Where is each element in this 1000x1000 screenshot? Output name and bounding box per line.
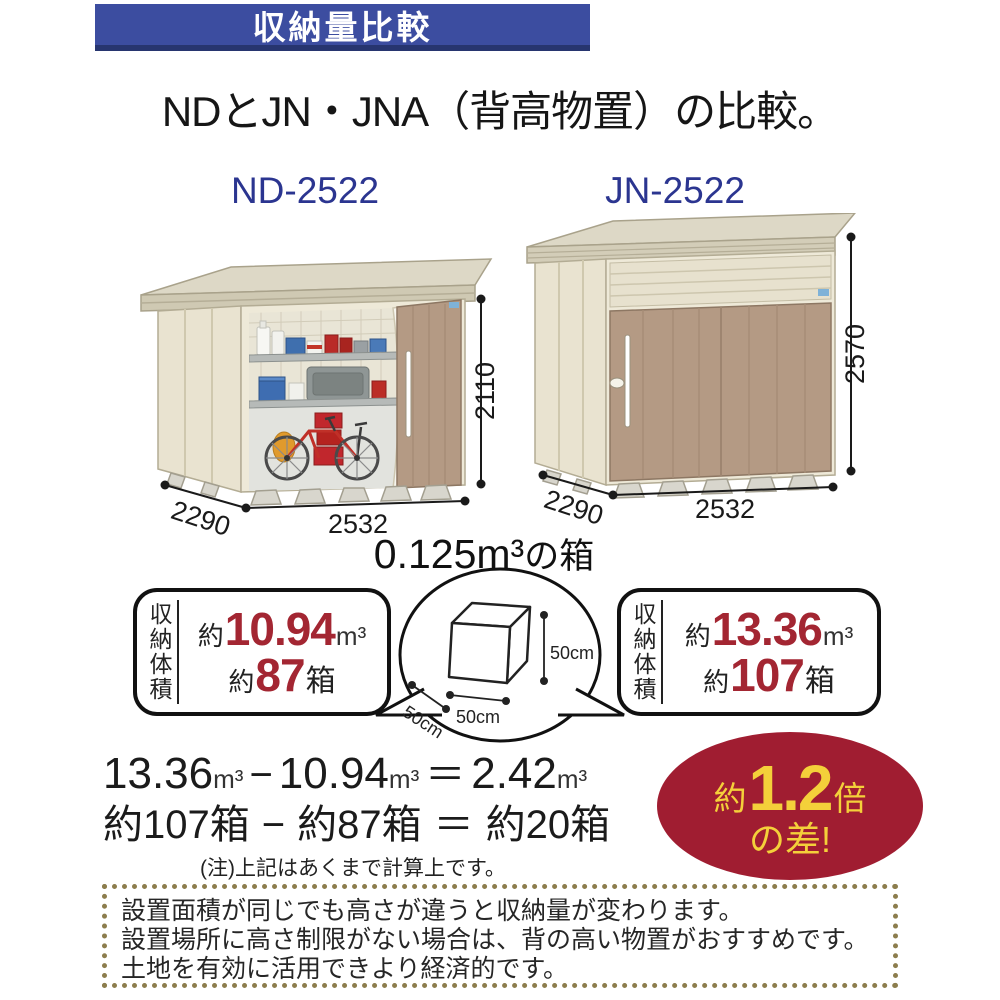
minus-sign: − [262,803,285,848]
shed-jn-side-wall [535,259,606,485]
shed-nd-side-wall [158,306,241,492]
svg-text:2110: 2110 [470,362,500,420]
dimension-height-jn: 2570 [840,233,870,476]
capacity-label: 収納体積 [147,602,170,702]
approx-prefix: 約 [228,669,254,695]
svg-text:50cm: 50cm [550,643,594,663]
page-heading: NDとJN・JNA（背高物置）の比較。 [0,78,1000,139]
banner: 収納量比較 [95,4,590,51]
volume-unit: m³ [336,623,366,649]
shed-illustration-nd: 2110 2532 2290 [113,255,508,547]
boxes-value: 87 [255,652,304,698]
shed-jn-doors [610,303,831,481]
boxes-row: 約 107 箱 [671,652,867,698]
door-lock [610,378,624,388]
badge-approx: 約 [714,782,747,815]
volume-row: 約 13.36 m³ [671,606,867,652]
boxes-value: 107 [730,652,804,698]
boxes-unit: 箱 [805,667,835,697]
calc-value: 約20箱 [486,792,611,850]
shed-nd-interior [247,305,401,495]
footer-line: 土地を有効に活用できより経済的です。 [121,955,879,984]
footer-line: 設置場所に高さ制限がない場合は、背の高い物置がおすすめです。 [121,926,879,955]
footer-note-box: 設置面積が同じでも高さが違うと収納量が変わります。 設置場所に高さ制限がない場合… [102,884,898,988]
capacity-label: 収納体積 [631,602,654,702]
svg-text:2532: 2532 [695,494,755,524]
footer-line: 設置面積が同じでも高さが違うと収納量が変わります。 [121,897,879,926]
reference-cube [449,603,530,683]
equals-sign: ＝ [434,792,474,850]
brand-tag [449,302,459,308]
boxes-unit: 箱 [306,667,336,697]
calc-value: 約107箱 [103,792,250,850]
calc-unit: m³ [389,764,419,795]
banner-title: 収納量比較 [253,1,433,49]
model-label-jn: JN-2522 [525,170,825,212]
calc-unit: m³ [213,764,243,795]
volume-unit: m³ [823,623,853,649]
capacity-box-jn: 収納体積 約 13.36 m³ 約 107 箱 [617,588,881,716]
svg-text:2570: 2570 [840,324,870,384]
volume-value: 13.36 [712,606,822,652]
calculation-note: (注)上記はあくまで計算上です。 [200,852,506,882]
shed-nd-door [397,300,461,488]
dimension-height-nd: 2110 [470,295,500,489]
calculation-boxes: 約107箱 − 約87箱 ＝ 約20箱 [103,792,610,850]
volume-value: 10.94 [225,606,335,652]
shed-illustration-jn: 2570 2532 2290 [513,213,888,543]
door-handle [406,351,411,437]
capacity-values: 約 13.36 m³ 約 107 箱 [671,606,867,698]
capacity-box-nd: 収納体積 約 10.94 m³ 約 87 箱 [133,588,391,716]
divider [661,600,663,704]
door-handle [625,335,630,427]
boxes-row: 約 87 箱 [187,652,377,698]
approx-prefix: 約 [198,623,224,649]
reference-box-bubble: 50cm 50cm 50cm [368,563,632,755]
calc-unit: m³ [557,764,587,795]
badge-value: 1.2 [749,756,832,820]
badge-line1: 約 1.2 倍 [714,756,867,820]
infographic-page: 収納量比較 NDとJN・JNA（背高物置）の比較。 ND-2522 JN-252… [0,0,1000,1000]
badge-line2: の差! [749,822,831,858]
upper-slat-band [610,255,831,307]
volume-row: 約 10.94 m³ [187,606,377,652]
approx-prefix: 約 [703,669,729,695]
capacity-values: 約 10.94 m³ 約 87 箱 [187,606,377,698]
approx-prefix: 約 [685,623,711,649]
svg-text:50cm: 50cm [456,707,500,727]
brand-tag [818,289,829,296]
model-label-nd: ND-2522 [155,170,455,212]
shed-jn-front [606,251,835,485]
difference-badge: 約 1.2 倍 の差! [657,732,923,880]
calc-value: 約87箱 [297,792,422,850]
badge-times: 倍 [833,782,866,815]
divider [177,600,179,704]
